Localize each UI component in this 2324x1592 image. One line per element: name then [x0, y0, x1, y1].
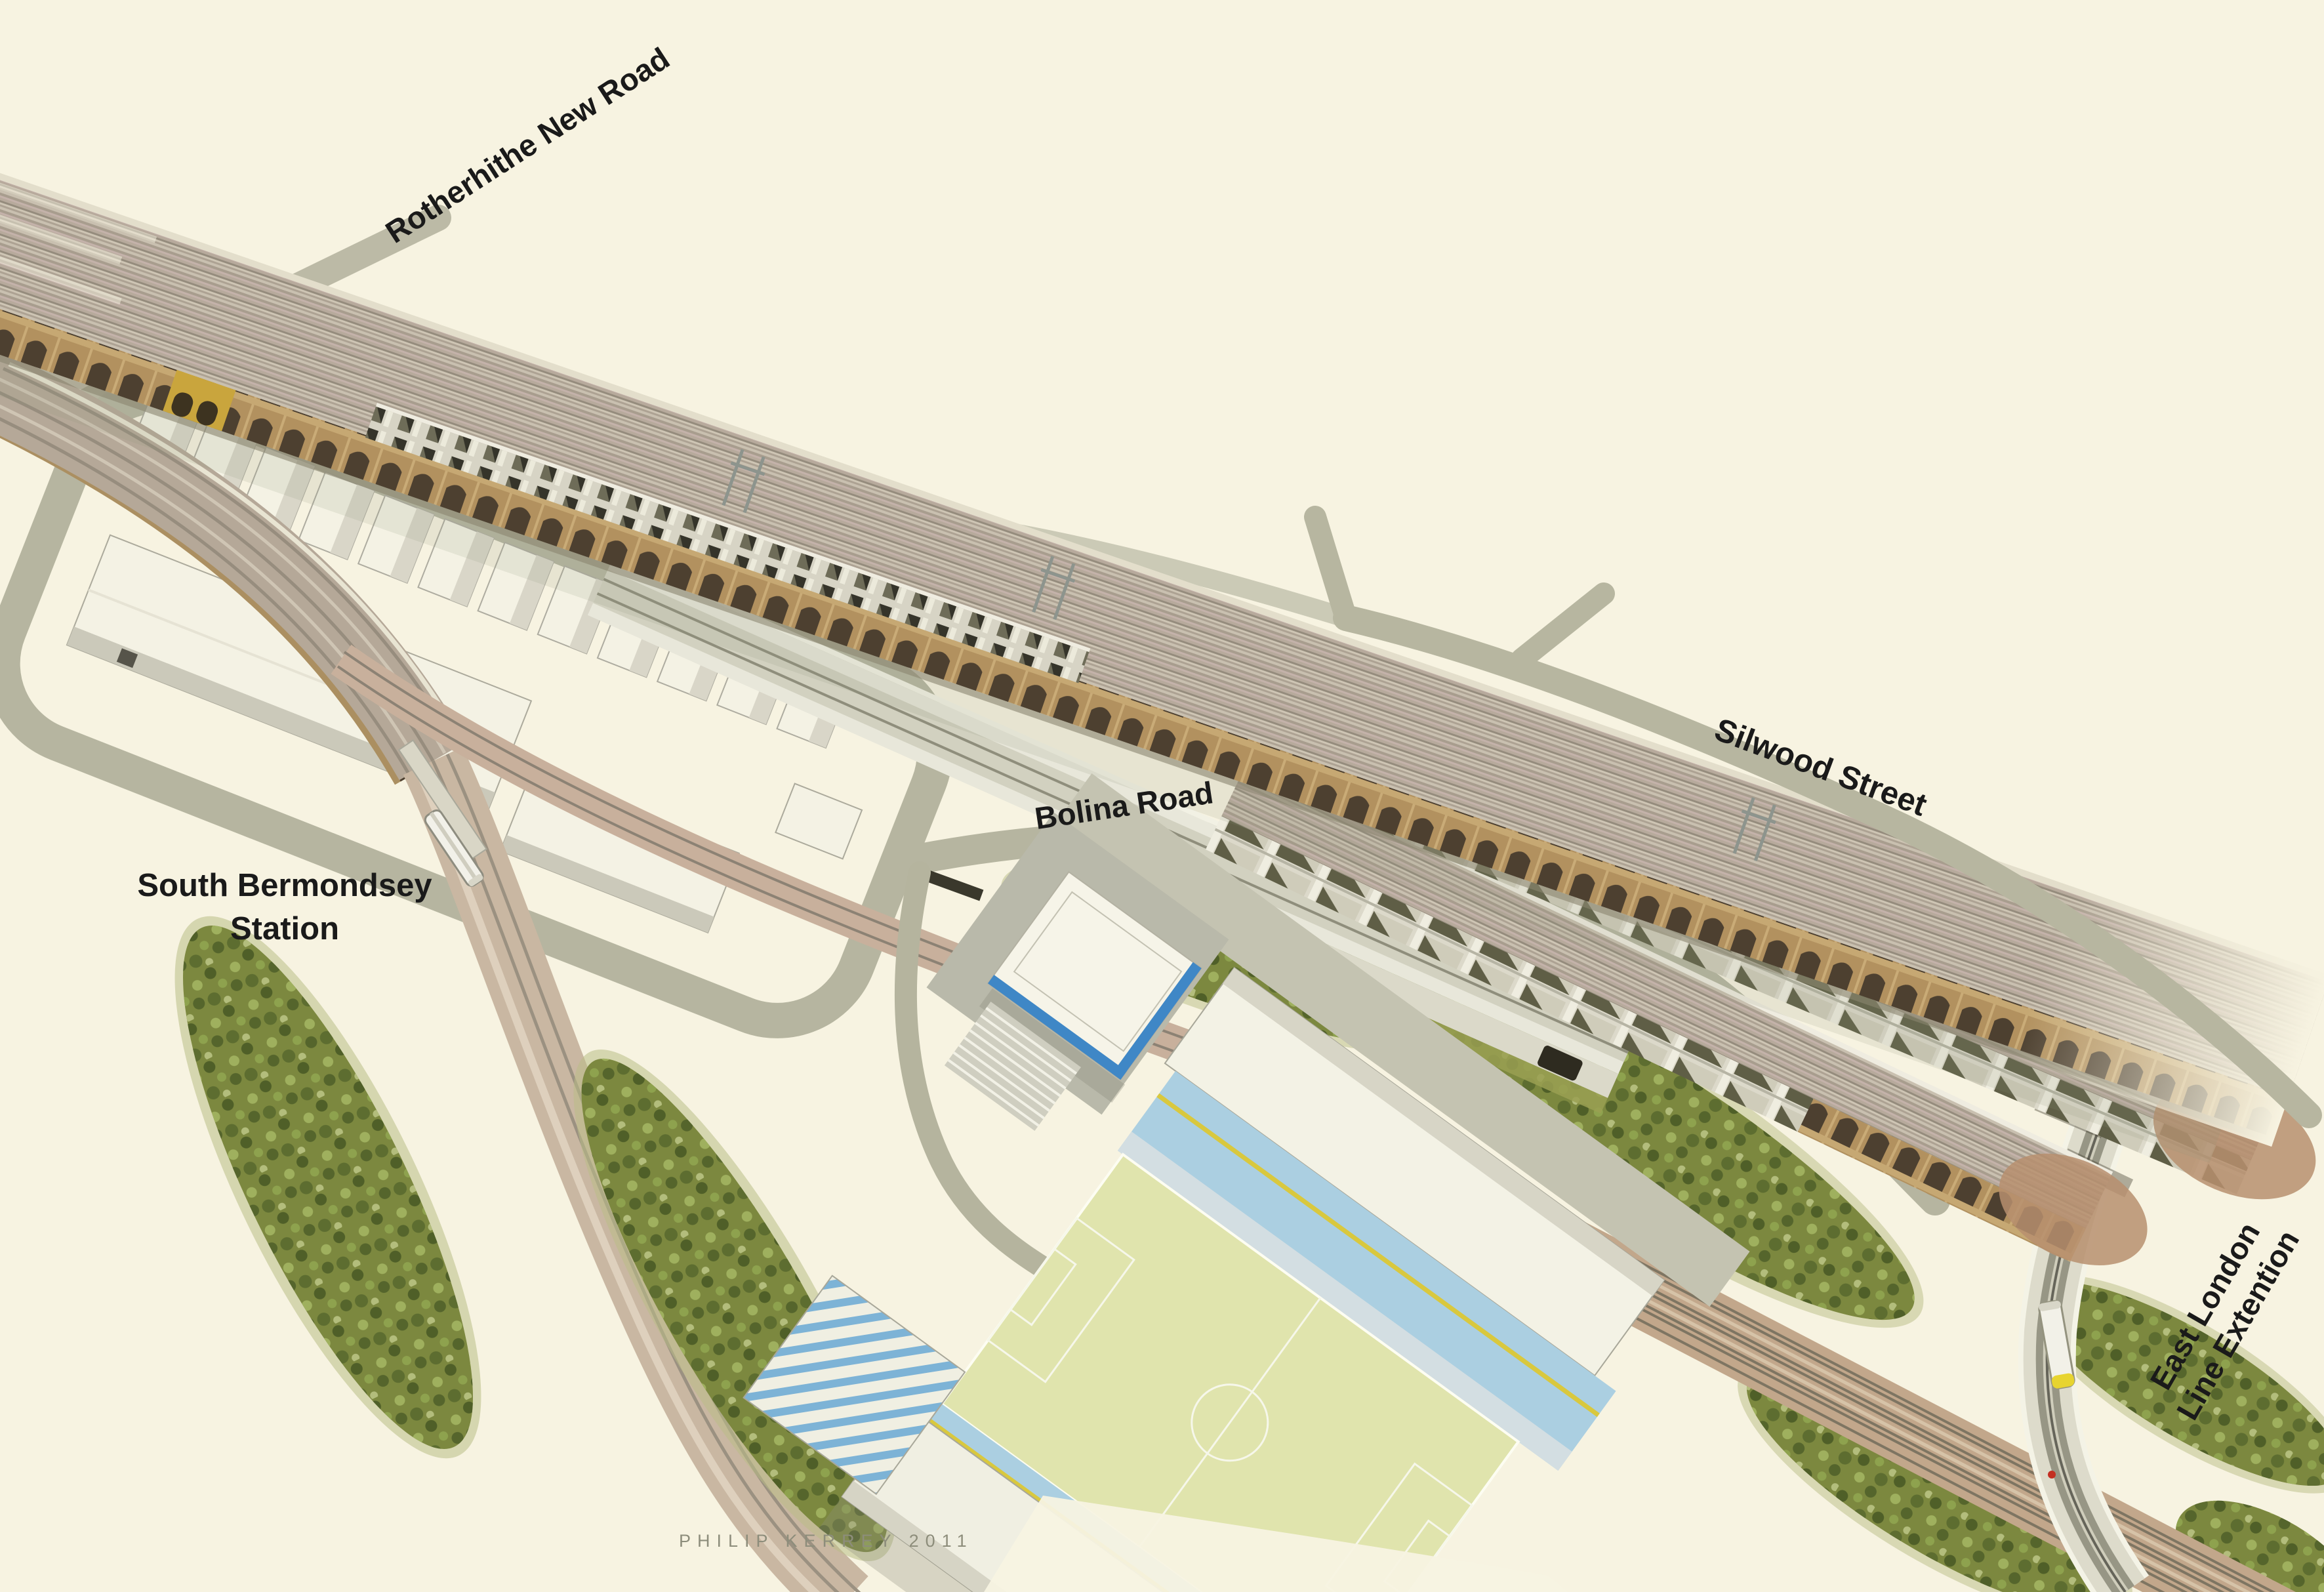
- label-south-bermondsey-line1: South Bermondsey: [137, 868, 432, 903]
- artist-signature: PHILIP KERREY 2011: [679, 1531, 973, 1551]
- illustration-stage: Rotherhithe New Road Silwood Street Boli…: [0, 0, 2324, 1592]
- signal-light: [2048, 1471, 2056, 1479]
- illustration-canvas: Rotherhithe New Road Silwood Street Boli…: [0, 0, 2324, 1592]
- label-south-bermondsey-line2: Station: [230, 911, 339, 947]
